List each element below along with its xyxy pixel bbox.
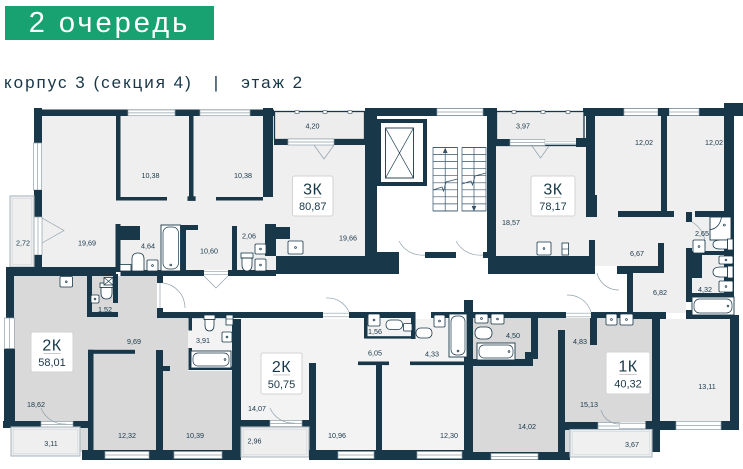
svg-text:12,30: 12,30: [440, 431, 458, 440]
svg-text:80,87: 80,87: [299, 201, 327, 213]
svg-text:10,60: 10,60: [200, 247, 218, 256]
svg-text:2,06: 2,06: [242, 232, 256, 241]
svg-text:78,17: 78,17: [539, 201, 567, 213]
svg-text:13,11: 13,11: [698, 382, 715, 391]
svg-text:12,02: 12,02: [635, 138, 653, 147]
svg-text:18,57: 18,57: [502, 218, 520, 227]
svg-text:4,33: 4,33: [425, 350, 439, 359]
svg-text:1К: 1К: [618, 358, 637, 375]
svg-text:1,56: 1,56: [368, 327, 382, 336]
svg-text:2,72: 2,72: [16, 239, 30, 248]
svg-text:12,02: 12,02: [705, 138, 723, 147]
svg-text:2,65: 2,65: [695, 229, 709, 238]
svg-text:10,39: 10,39: [186, 431, 204, 440]
svg-text:4,20: 4,20: [306, 122, 320, 131]
svg-text:10,38: 10,38: [234, 171, 252, 180]
svg-text:15,13: 15,13: [580, 400, 598, 409]
svg-text:6,67: 6,67: [630, 249, 644, 258]
svg-text:3К: 3К: [543, 181, 562, 198]
svg-text:3,97: 3,97: [516, 122, 530, 131]
svg-text:10,96: 10,96: [328, 431, 346, 440]
svg-text:14,02: 14,02: [518, 422, 536, 431]
svg-text:3,91: 3,91: [196, 336, 210, 345]
svg-text:2К: 2К: [42, 337, 61, 354]
svg-text:10,38: 10,38: [142, 171, 160, 180]
svg-text:3К: 3К: [303, 181, 322, 198]
svg-text:2К: 2К: [272, 359, 291, 376]
svg-text:4,83: 4,83: [573, 337, 587, 346]
svg-text:14,07: 14,07: [248, 404, 266, 413]
svg-text:6,05: 6,05: [368, 349, 382, 358]
svg-text:4,32: 4,32: [698, 285, 712, 294]
svg-text:4,50: 4,50: [506, 331, 520, 340]
svg-text:1,52: 1,52: [98, 305, 112, 314]
svg-text:9,69: 9,69: [127, 337, 141, 346]
svg-text:19,66: 19,66: [339, 234, 357, 243]
svg-text:50,75: 50,75: [268, 379, 296, 391]
svg-text:19,69: 19,69: [78, 239, 96, 248]
svg-text:6,82: 6,82: [653, 288, 667, 297]
svg-text:58,01: 58,01: [38, 357, 66, 369]
svg-text:40,32: 40,32: [614, 379, 642, 391]
svg-text:2,96: 2,96: [248, 437, 262, 446]
svg-text:3,67: 3,67: [625, 440, 639, 449]
svg-text:3,11: 3,11: [44, 439, 57, 448]
svg-text:12,32: 12,32: [118, 431, 136, 440]
svg-text:18,62: 18,62: [27, 400, 45, 409]
svg-text:4,64: 4,64: [141, 242, 155, 251]
